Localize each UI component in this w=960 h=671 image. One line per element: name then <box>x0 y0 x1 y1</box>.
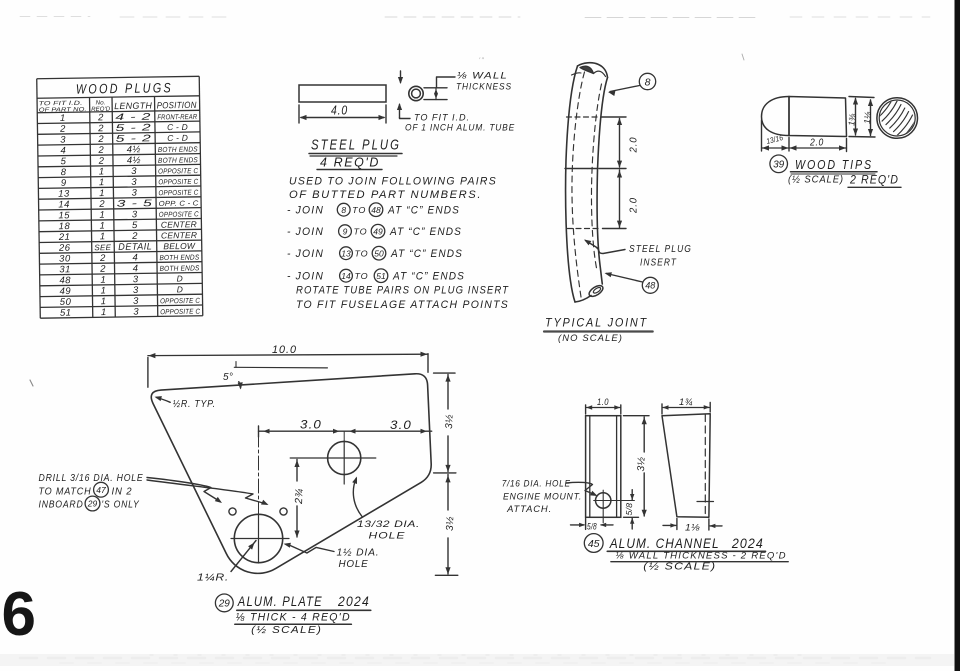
svg-text:1: 1 <box>99 177 105 188</box>
svg-text:DETAIL: DETAIL <box>118 241 152 253</box>
svg-text:2¾: 2¾ <box>293 488 306 505</box>
svg-text:3 - 5: 3 - 5 <box>117 198 154 210</box>
svg-text:BOTH ENDS: BOTH ENDS <box>158 144 198 154</box>
svg-text:(½ SCALE): (½ SCALE) <box>788 174 844 186</box>
svg-text:47: 47 <box>96 485 106 495</box>
svg-text:14: 14 <box>58 199 70 210</box>
svg-text:48: 48 <box>59 275 71 286</box>
svg-text:′ ′′: ′ ′′ <box>479 58 484 64</box>
svg-text:2 REQ'D: 2 REQ'D <box>849 173 899 187</box>
svg-text:ALUM. PLATE: ALUM. PLATE <box>237 594 323 609</box>
svg-text:3: 3 <box>131 177 137 188</box>
svg-text:8: 8 <box>341 205 346 215</box>
svg-text:OPPOSITE C: OPPOSITE C <box>160 307 201 317</box>
svg-text:39: 39 <box>773 159 785 170</box>
svg-text:4.0: 4.0 <box>331 104 348 118</box>
svg-text:3: 3 <box>131 166 137 177</box>
svg-text:1: 1 <box>99 166 105 177</box>
svg-text:'S ONLY: 'S ONLY <box>102 500 140 511</box>
svg-text:3½: 3½ <box>444 414 456 429</box>
svg-text:AT “C” ENDS: AT “C” ENDS <box>387 205 460 217</box>
svg-text:TO: TO <box>355 271 369 281</box>
svg-text:9: 9 <box>343 226 348 236</box>
svg-text:STEEL PLUG: STEEL PLUG <box>629 243 692 255</box>
svg-text:SEE: SEE <box>94 243 111 252</box>
svg-text:1: 1 <box>99 210 105 221</box>
svg-text:(NO SCALE): (NO SCALE) <box>558 333 623 344</box>
svg-text:1: 1 <box>101 296 107 307</box>
svg-text:2: 2 <box>97 134 104 145</box>
svg-text:LENGTH: LENGTH <box>114 101 152 112</box>
svg-text:21: 21 <box>58 232 71 243</box>
svg-text:BOTH ENDS: BOTH ENDS <box>159 253 199 263</box>
svg-text:1¼R.: 1¼R. <box>197 572 229 584</box>
svg-text:CENTER: CENTER <box>161 219 197 230</box>
svg-text:(½ SCALE): (½ SCALE) <box>251 624 322 636</box>
svg-text:4: 4 <box>60 145 66 156</box>
svg-text:1: 1 <box>101 307 107 318</box>
svg-text:1: 1 <box>100 221 106 232</box>
svg-text:TO: TO <box>354 227 368 237</box>
svg-text:48: 48 <box>371 205 381 215</box>
svg-text:1.0: 1.0 <box>597 397 609 408</box>
svg-text:3: 3 <box>133 307 139 318</box>
svg-text:48: 48 <box>645 281 655 291</box>
svg-text:OF 1 INCH ALUM. TUBE: OF 1 INCH ALUM. TUBE <box>405 123 515 134</box>
svg-text:6: 6 <box>2 580 36 649</box>
svg-text:⅛ THICK - 4 REQ'D: ⅛ THICK - 4 REQ'D <box>236 612 351 624</box>
svg-text:OF BUTTED PART NUMBERS.: OF BUTTED PART NUMBERS. <box>289 189 482 201</box>
svg-text:3½: 3½ <box>636 456 648 471</box>
svg-text:OPPOSITE C: OPPOSITE C <box>160 296 201 306</box>
svg-text:TO FIT FUSELAGE ATTACH POINTS: TO FIT FUSELAGE ATTACH POINTS <box>296 299 509 311</box>
svg-text:4: 4 <box>132 252 138 263</box>
svg-text:13/16: 13/16 <box>765 133 784 146</box>
svg-text:WOOD TIPS: WOOD TIPS <box>795 158 873 172</box>
svg-text:31: 31 <box>59 264 71 275</box>
svg-text:2.0: 2.0 <box>628 137 640 154</box>
svg-text:DRILL 3/16 DIA. HOLE: DRILL 3/16 DIA. HOLE <box>39 473 144 484</box>
svg-text:2024: 2024 <box>731 536 764 551</box>
svg-text:2.0: 2.0 <box>628 197 640 214</box>
svg-text:4: 4 <box>133 263 139 274</box>
svg-text:THICKNESS: THICKNESS <box>456 82 512 93</box>
svg-text:1⅜: 1⅜ <box>846 112 857 126</box>
svg-text:45: 45 <box>588 538 600 550</box>
svg-text:3: 3 <box>133 285 139 296</box>
svg-text:⅛ WALL THICKNESS - 2 REQ'D: ⅛ WALL THICKNESS - 2 REQ'D <box>616 551 787 562</box>
svg-text:3: 3 <box>133 274 139 285</box>
svg-text:3½: 3½ <box>445 516 457 531</box>
svg-text:BOTH ENDS: BOTH ENDS <box>158 155 198 165</box>
svg-text:1: 1 <box>101 285 107 296</box>
svg-text:1: 1 <box>100 231 106 242</box>
svg-text:4½: 4½ <box>127 155 141 166</box>
svg-text:2.0: 2.0 <box>809 138 824 149</box>
svg-text:2: 2 <box>98 199 105 210</box>
svg-text:STEEL PLUG: STEEL PLUG <box>311 138 401 154</box>
svg-text:ROTATE TUBE PAIRS ON PLUG INSE: ROTATE TUBE PAIRS ON PLUG INSERT <box>296 285 509 297</box>
svg-text:HOLE: HOLE <box>369 531 406 542</box>
svg-text:AT “C” ENDS: AT “C” ENDS <box>390 248 463 260</box>
svg-text:3: 3 <box>60 134 66 145</box>
svg-text:10.0: 10.0 <box>272 344 297 356</box>
svg-text:2: 2 <box>131 231 138 242</box>
svg-text:30: 30 <box>59 253 71 264</box>
svg-text:HOLE: HOLE <box>339 559 369 570</box>
svg-text:18: 18 <box>59 221 71 232</box>
svg-text:5 - 2: 5 - 2 <box>115 122 152 134</box>
svg-text:OPPOSITE C: OPPOSITE C <box>158 188 199 198</box>
svg-text:- JOIN: - JOIN <box>287 248 324 260</box>
svg-text:OPPOSITE C: OPPOSITE C <box>159 209 200 219</box>
svg-text:50: 50 <box>374 248 384 258</box>
svg-text:1: 1 <box>99 188 105 199</box>
svg-text:2: 2 <box>98 156 105 167</box>
svg-text:CENTER: CENTER <box>161 230 197 241</box>
svg-text:13: 13 <box>341 248 351 258</box>
svg-text:POSITION: POSITION <box>157 100 197 111</box>
svg-text:4 REQ'D: 4 REQ'D <box>320 156 380 170</box>
svg-text:ALUM. CHANNEL: ALUM. CHANNEL <box>609 536 720 551</box>
svg-text:⅛ WALL: ⅛ WALL <box>457 71 508 82</box>
svg-text:13/32 DIA.: 13/32 DIA. <box>357 519 420 530</box>
svg-text:4 - 2: 4 - 2 <box>115 112 152 124</box>
svg-text:5 - 2: 5 - 2 <box>116 133 153 145</box>
svg-text:8: 8 <box>61 167 67 178</box>
svg-text:OPPOSITE C: OPPOSITE C <box>158 166 199 176</box>
svg-text:ENGINE MOUNT.: ENGINE MOUNT. <box>503 492 582 503</box>
svg-text:2: 2 <box>97 123 104 134</box>
svg-text:51: 51 <box>60 308 72 319</box>
svg-text:2: 2 <box>97 145 104 156</box>
svg-text:D: D <box>177 284 183 294</box>
svg-text:3: 3 <box>132 209 138 220</box>
svg-text:OPPOSITE C: OPPOSITE C <box>158 177 199 187</box>
svg-text:3: 3 <box>133 296 139 307</box>
svg-text:AT “C” ENDS: AT “C” ENDS <box>392 271 465 283</box>
svg-text:3.0: 3.0 <box>300 420 322 432</box>
svg-text:WOOD PLUGS: WOOD PLUGS <box>76 80 173 96</box>
svg-text:INSERT: INSERT <box>640 257 677 269</box>
svg-text:49: 49 <box>373 226 383 236</box>
svg-text:ATTACH.: ATTACH. <box>506 504 552 515</box>
svg-text:4½: 4½ <box>127 144 141 155</box>
svg-text:FRONT-REAR: FRONT-REAR <box>157 112 197 122</box>
svg-text:13: 13 <box>58 189 70 200</box>
svg-text:1⅛: 1⅛ <box>862 110 873 124</box>
svg-text:OPP. C - C: OPP. C - C <box>159 198 200 208</box>
svg-text:9: 9 <box>61 178 67 189</box>
svg-text:TO: TO <box>355 249 369 259</box>
svg-text:8: 8 <box>645 76 651 88</box>
svg-text:3: 3 <box>131 188 137 199</box>
svg-text:2: 2 <box>99 264 106 275</box>
svg-text:2: 2 <box>99 253 106 264</box>
svg-text:TO MATCH: TO MATCH <box>39 486 92 497</box>
svg-text:5: 5 <box>132 220 138 231</box>
svg-text:49: 49 <box>60 286 72 297</box>
svg-text:- JOIN: - JOIN <box>287 226 324 238</box>
svg-text:USED TO JOIN FOLLOWING PAIRS: USED TO JOIN FOLLOWING PAIRS <box>289 176 497 188</box>
svg-text:IN 2: IN 2 <box>112 486 133 497</box>
svg-text:INBOARD: INBOARD <box>39 500 84 511</box>
svg-text:5: 5 <box>60 156 66 167</box>
svg-text:1: 1 <box>60 113 66 124</box>
svg-text:TYPICAL JOINT: TYPICAL JOINT <box>545 316 648 330</box>
svg-text:D: D <box>176 273 182 283</box>
svg-text:2: 2 <box>97 112 104 123</box>
svg-text:51: 51 <box>376 271 386 281</box>
svg-text:- JOIN: - JOIN <box>287 205 324 217</box>
svg-text:2: 2 <box>59 124 66 135</box>
svg-text:3.0: 3.0 <box>390 420 412 432</box>
svg-text:29: 29 <box>87 499 98 509</box>
svg-text:BELOW: BELOW <box>163 241 196 251</box>
svg-text:7/16 DIA. HOLE: 7/16 DIA. HOLE <box>502 479 571 490</box>
svg-text:1½ DIA.: 1½ DIA. <box>337 548 380 559</box>
svg-text:1⅛: 1⅛ <box>685 523 700 534</box>
svg-text:5/8: 5/8 <box>624 503 634 516</box>
svg-text:½R. TYP.: ½R. TYP. <box>173 399 216 410</box>
svg-text:1¾: 1¾ <box>679 397 693 408</box>
svg-text:5/8: 5/8 <box>587 522 597 533</box>
svg-text:29: 29 <box>218 599 231 610</box>
svg-text:15: 15 <box>58 210 70 221</box>
svg-text:5°: 5° <box>223 372 233 383</box>
svg-text:TO: TO <box>352 205 366 215</box>
svg-text:C - D: C - D <box>167 133 188 143</box>
svg-text:50: 50 <box>60 297 72 308</box>
svg-text:1: 1 <box>100 275 106 286</box>
svg-text:- JOIN: - JOIN <box>287 271 324 283</box>
svg-text:BOTH ENDS: BOTH ENDS <box>159 263 199 273</box>
svg-text:AT “C” ENDS: AT “C” ENDS <box>389 226 462 238</box>
svg-text:(½ SCALE): (½ SCALE) <box>643 561 716 572</box>
svg-text:14: 14 <box>341 271 351 281</box>
svg-text:2024: 2024 <box>337 594 370 609</box>
svg-text:26: 26 <box>58 243 71 254</box>
svg-text:C - D: C - D <box>167 122 188 132</box>
